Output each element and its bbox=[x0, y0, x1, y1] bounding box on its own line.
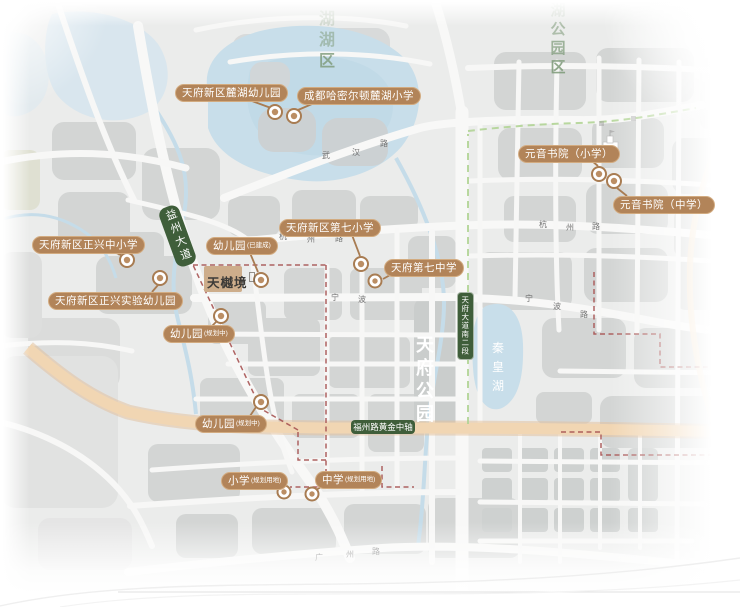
kindergarten-planned-west-status: (规划中) bbox=[204, 331, 228, 338]
zhengxing-experimental-kindergarten-name: 天府新区正兴实验幼儿园 bbox=[55, 296, 176, 307]
tianfu-7th-middle-name: 天府第七中学 bbox=[391, 263, 457, 274]
kindergarten-planned-south-status: (规划中) bbox=[236, 421, 260, 428]
project-trademark-icon bbox=[249, 272, 255, 282]
middle-planned-site-name: 中学 bbox=[322, 475, 344, 486]
area-map: 武汉路杭州路杭州路宁波宁波路广州路湖湖区湖公园区天府公园秦皇湖 天府新区麓湖幼儿… bbox=[0, 0, 740, 607]
yizhou-avenue-badge: 益州大道 bbox=[157, 203, 198, 268]
tianfu-7th-middle-label: 天府第七中学 bbox=[384, 259, 464, 277]
yuanyin-academy-primary-name: 元音书院（小学） bbox=[525, 149, 613, 160]
kindergarten-planned-west-label: 幼儿园(规划中) bbox=[163, 325, 235, 343]
project-name-text: 天樾境 bbox=[207, 276, 248, 290]
kindergarten-planned-south-label: 幼儿园(规划中) bbox=[195, 415, 267, 433]
yuanyin-academy-middle-label: 元音书院（中学） bbox=[613, 196, 715, 214]
primary-planned-site-label: 小学(规划用地) bbox=[221, 472, 288, 490]
hamilton-luhu-primary-label: 成都哈密尔顿麓湖小学 bbox=[297, 87, 421, 105]
yuanyin-academy-middle-name: 元音书院（中学） bbox=[620, 200, 708, 211]
zhengxing-primary-middle-label: 天府新区正兴中小学 bbox=[32, 236, 145, 254]
primary-planned-site-status: (规划用地) bbox=[251, 478, 281, 485]
luhu-kindergarten-label: 天府新区麓湖幼儿园 bbox=[175, 84, 288, 102]
zhengxing-experimental-kindergarten-label: 天府新区正兴实验幼儿园 bbox=[48, 292, 183, 310]
kindergarten-built-label: 幼儿园(已建成) bbox=[206, 237, 278, 255]
tianfu-7th-primary-label: 天府新区第七小学 bbox=[279, 219, 381, 237]
middle-planned-site-status: (规划用地) bbox=[345, 477, 375, 484]
hamilton-luhu-primary-name: 成都哈密尔顿麓湖小学 bbox=[304, 91, 414, 102]
project-name: 天樾境 bbox=[207, 272, 255, 291]
primary-planned-site-name: 小学 bbox=[228, 476, 250, 487]
kindergarten-planned-south-name: 幼儿园 bbox=[202, 419, 235, 430]
middle-planned-site-label: 中学(规划用地) bbox=[315, 471, 382, 489]
kindergarten-built-status: (已建成) bbox=[247, 243, 271, 250]
tianfu-7th-primary-name: 天府新区第七小学 bbox=[286, 223, 374, 234]
kindergarten-built-name: 幼儿园 bbox=[213, 241, 246, 252]
luhu-kindergarten-name: 天府新区麓湖幼儿园 bbox=[182, 88, 281, 99]
yuanyin-academy-primary-label: 元音书院（小学） bbox=[518, 145, 620, 163]
map-label-layer: 天府新区麓湖幼儿园成都哈密尔顿麓湖小学元音书院（小学）元音书院（中学）天府新区第… bbox=[0, 0, 740, 607]
tianfu-avenue-south-2-badge: 天府大道南二段 bbox=[457, 292, 474, 360]
kindergarten-planned-west-name: 幼儿园 bbox=[170, 329, 203, 340]
fuzhou-road-golden-axis-badge: 福州路黄金中轴 bbox=[351, 420, 415, 434]
zhengxing-primary-middle-name: 天府新区正兴中小学 bbox=[39, 240, 138, 251]
